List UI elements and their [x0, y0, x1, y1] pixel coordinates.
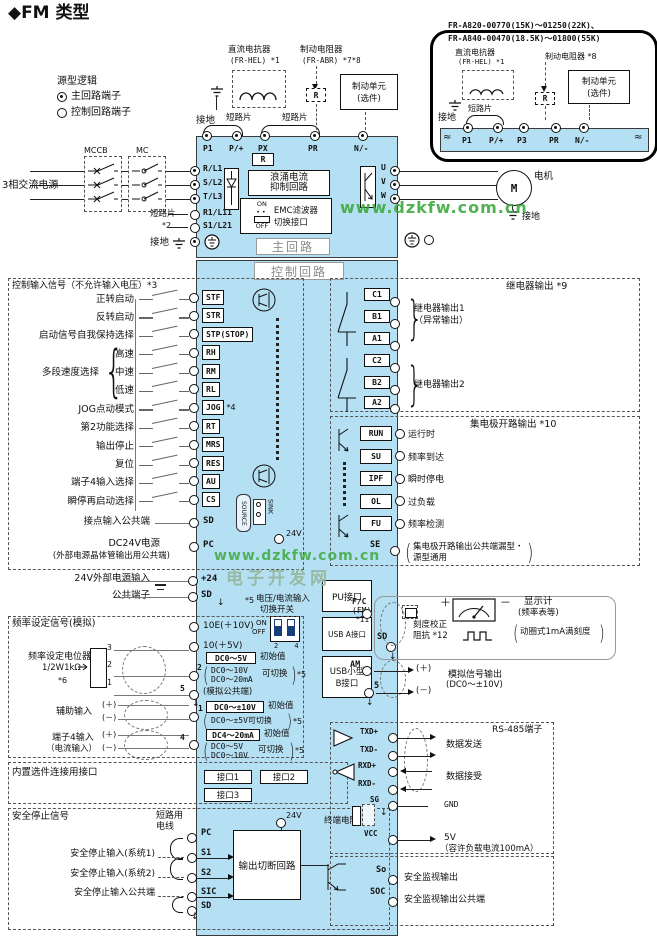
relay-output-1-label: 继电器输出1 — [414, 304, 465, 314]
terminal-4-input-label-2: （电流输入） — [46, 745, 97, 755]
sink-label: SINK — [266, 499, 273, 514]
terminal-px-circle — [260, 131, 270, 141]
inset-brake-unit-box: 制动单元 (选件) — [568, 70, 630, 104]
jumper-wire — [172, 897, 183, 913]
emc-filter-box: ON •• OFF EMC滤波器 切换接口 — [240, 198, 332, 234]
input-terminal-circle — [189, 403, 199, 413]
inset-terminal-p3-circle — [519, 123, 529, 133]
data-receive-label: 数据接受 — [446, 772, 482, 782]
inset-brake-unit-opt: (选件) — [587, 87, 611, 99]
safety-24v-source — [276, 818, 286, 828]
wire — [406, 771, 432, 772]
pot-label-1: 频率设定电位器 — [28, 652, 91, 662]
input-terminal: STP(STOP) — [202, 327, 253, 342]
terminal-u-circle — [390, 166, 400, 176]
terminal-rxdm: RXD- — [358, 780, 376, 789]
input-row: 低速 RL — [10, 383, 255, 396]
display-meter-sub: (频率表等) — [518, 609, 559, 619]
sink-pin — [256, 512, 261, 517]
terminal-s1l21: S1/L21 — [203, 221, 232, 230]
model-line-1: FR-A820-00770(15K)～01250(22K)、 — [446, 21, 601, 30]
terminal-v-circle — [390, 180, 400, 190]
inset-terminal-pplus: P/+ — [489, 136, 503, 145]
paren: ( — [405, 541, 411, 566]
internal-r-box: R — [252, 153, 274, 166]
tx-buffer-icon — [332, 728, 356, 748]
terminal-c1: C1 — [364, 288, 390, 301]
safety-input-2-label: 安全停止输入(系统2) — [30, 869, 155, 879]
safety-wire-label-2: 电线 — [156, 822, 174, 832]
input-label: 输出停止 — [10, 438, 137, 452]
input-row: 启动信号自我保持选择 STP(STOP) — [10, 328, 255, 341]
arrow — [228, 874, 234, 880]
input-row: 第2功能选择 RT — [10, 420, 255, 433]
mc-label: MC — [136, 146, 149, 155]
terminal-2-range-box: DC0～5V — [206, 652, 256, 664]
wire — [589, 105, 590, 120]
wire-w — [400, 199, 498, 200]
down-arrow: ↓ — [366, 698, 374, 708]
input-terminal: RES — [202, 456, 224, 471]
frequency-heading: 频率设定信号(模拟) — [12, 619, 95, 630]
top-brake-unit-box: 制动单元 (选件) — [340, 74, 398, 110]
input-terminal-circle — [189, 495, 199, 505]
terminal-am-circle — [362, 666, 372, 676]
oc-terminal: IPF — [360, 471, 392, 486]
arrow — [430, 734, 436, 740]
calibration-resistor — [405, 608, 417, 618]
terminal-tl3: T/L3 — [203, 192, 222, 201]
top-reactor-name: 直流电抗器 — [228, 46, 271, 56]
wire — [120, 581, 188, 582]
terminal-vcc-circle — [388, 835, 398, 845]
option-port-2: 接口2 — [260, 770, 308, 784]
jumper2-label: 短路片 — [150, 210, 176, 220]
oc-row: SU 频率到达 — [360, 450, 444, 463]
terminal-pc: PC — [203, 540, 214, 550]
meter-minus: － — [500, 597, 511, 610]
input-terminal: MRS — [202, 437, 224, 452]
paren: ( — [203, 664, 208, 687]
terminal-s1l21-circle — [190, 223, 200, 233]
wire — [406, 789, 432, 790]
emc-label: EMC滤波器 切换接口 — [274, 204, 318, 228]
safety-24v-label: 24V — [286, 811, 302, 820]
terminal-10e: 10E(＋10V) — [203, 621, 254, 631]
wire — [398, 806, 428, 807]
input-terminal: RT — [202, 419, 220, 434]
terminal-pr-circle — [310, 131, 320, 141]
terminal-vcc: VCC — [364, 830, 378, 839]
inset-terminal-pr-circle — [551, 123, 561, 133]
input-label: 正转启动 — [10, 291, 137, 305]
input-terminal: JOG — [202, 400, 224, 415]
top-brake-resistor-model: (FR-ABR) *7*8 — [302, 57, 361, 66]
gnd-label: GND — [444, 800, 458, 809]
relay-contact-icon — [334, 356, 360, 414]
top-brake-resistor-label: 制动电阻器 — [300, 46, 343, 56]
calibration-label-2: 阻抗 *12 — [413, 632, 448, 642]
wire-v — [400, 185, 497, 186]
arrow — [430, 752, 436, 758]
inset-coil-icon — [468, 82, 508, 96]
leader — [158, 857, 184, 858]
emc-label-2: 切换接口 — [274, 216, 318, 228]
option-heading: 内置选件连接用接口 — [12, 768, 98, 779]
top-coil-icon — [238, 86, 280, 102]
terminal-sd-circle — [189, 518, 199, 528]
wire — [316, 66, 317, 84]
relay-output-2-label: 继电器输出2 — [414, 380, 465, 390]
data-send-label: 数据发送 — [446, 740, 482, 750]
switch-icon — [137, 328, 189, 341]
input-note: *4 — [226, 403, 235, 412]
terminal-p1: P1 — [203, 144, 213, 153]
terminal-plus24-circle — [188, 576, 198, 586]
oc-row: OL 过负载 — [360, 495, 444, 508]
safety-monitor-common-label: 安全监视输出公共端 — [404, 895, 485, 905]
multi-speed-brace: { — [104, 340, 124, 404]
wire — [216, 96, 217, 110]
terminal-rl1-circle — [190, 166, 200, 176]
inset-terminal-nminus-circle — [579, 123, 589, 133]
terminal-p1-circle — [202, 131, 212, 141]
safety-wire-label-1: 短路用 — [156, 811, 183, 821]
input-label: 第2功能选择 — [10, 419, 137, 433]
terminal-2-alt2: DC0～20mA — [211, 675, 253, 684]
terminal-safety-pc: PC — [201, 829, 211, 839]
oc-label: 频率检测 — [408, 517, 444, 530]
shielded-cable — [122, 646, 166, 694]
multi-speed-label: 多段速度选择 — [42, 368, 99, 379]
optocoupler-icon — [246, 286, 282, 314]
input-label: 瞬停再启动选择 — [10, 493, 137, 507]
input-terminal: RL — [202, 382, 220, 397]
pot-pin-1: 1 — [107, 678, 112, 687]
terminal-a2-circle — [390, 404, 400, 414]
terminal-1-range-box: DC0～±10V — [206, 701, 264, 713]
se-label-2: 源型通用 — [413, 554, 447, 564]
terminal-4-circle — [189, 740, 199, 750]
switch-icon — [137, 493, 189, 506]
terminal-fc: F/C — [352, 597, 366, 606]
terminal-rxdp: RXD+ — [358, 762, 376, 771]
terminal-2-alt1: DC0～10V — [211, 666, 248, 675]
am-minus: (－) — [416, 687, 431, 697]
input-terminal-circle — [189, 293, 199, 303]
wire — [118, 719, 189, 720]
input-terminal-circle — [189, 348, 199, 358]
square-wave-icon — [462, 630, 494, 642]
oc-row: RUN 运行时 — [360, 427, 444, 440]
switch-icon — [137, 365, 189, 378]
terminal-rxdp-circle — [388, 767, 398, 777]
source-jumper: SOURCE — [236, 494, 251, 532]
input-terminal-circle — [189, 421, 199, 431]
terminal-2-note: *5 — [297, 670, 306, 679]
resistor-switch — [362, 804, 375, 826]
pot-note: *6 — [58, 676, 67, 685]
wire — [197, 897, 231, 898]
oc-transistor-icon — [334, 426, 360, 456]
oc-terminal: RUN — [360, 426, 392, 441]
optocoupler-icon — [246, 462, 282, 490]
inset-terminal-p1-circle — [463, 123, 473, 133]
input-row: 反转启动 STR — [10, 309, 255, 322]
arrow — [430, 836, 436, 842]
oc-dotted-line — [343, 462, 346, 506]
safety-monitor-box — [330, 856, 554, 926]
terminal-2-circle — [189, 671, 199, 681]
wire — [118, 735, 189, 736]
terminal-txdp: TXD+ — [360, 728, 378, 737]
safety-monitor-output-label: 安全监视输出 — [404, 873, 458, 883]
terminal-plus24: +24 — [201, 574, 217, 584]
terminal-r1l11: R1/L11 — [203, 208, 232, 217]
leader — [158, 896, 184, 897]
terminal-se-circle — [390, 546, 400, 556]
legend-main: 主回路端子 — [71, 91, 121, 103]
option-port-1: 接口1 — [204, 770, 252, 784]
terminal-pplus-circle — [232, 131, 242, 141]
surge-line2: 抑制回路 — [270, 183, 308, 193]
oc-terminal: FU — [360, 516, 392, 531]
surge-suppression-box: 浪涌电流 抑制回路 — [248, 170, 330, 196]
oc-row: FU 频率检测 — [360, 517, 444, 530]
inset-terminal-p3: P3 — [517, 136, 527, 145]
emc-switch: ON •• OFF — [254, 201, 270, 231]
top-jumper-right-label: 短路片 — [282, 114, 308, 124]
terminal-2-switchable: 可切换 — [262, 670, 288, 680]
terminal-sic-circle — [187, 892, 197, 902]
terminal-w-circle — [390, 194, 400, 204]
oc-transistor-icon — [334, 512, 360, 542]
input-terminal: STF — [202, 290, 224, 305]
emc-pins: •• — [256, 209, 268, 217]
top-jumper-left-label: 短路片 — [226, 114, 252, 124]
pot-wiper-arrow — [78, 662, 90, 672]
oc-label: 频率到达 — [408, 450, 444, 463]
ground-out-circle — [424, 235, 434, 245]
se-label-1: 集电极开路输出公共端漏型・ — [413, 543, 524, 553]
analog-output-label: 模拟信号输出 — [448, 670, 502, 680]
input-terminal-circle — [189, 440, 199, 450]
usb-b-line2: B接口 — [336, 677, 359, 689]
terminal-nminus-circle — [358, 131, 368, 141]
output-shutoff-box: 输出切断回路 — [233, 830, 301, 900]
transistor-icon — [362, 169, 374, 205]
wire-u — [400, 171, 498, 172]
inset-reactor-name: 直流电抗器 — [455, 48, 495, 57]
potentiometer — [90, 648, 107, 688]
diode-icon — [226, 171, 237, 207]
t4-plus: (＋) — [102, 730, 116, 739]
aux-minus: (－) — [102, 713, 116, 722]
open-collector-rows: RUN 运行时 SU 频率到达 IPF 瞬时停电 OL 过负载 FU 频率检测 — [360, 427, 444, 530]
terminal-4-alt2: DC0～10V — [211, 751, 248, 760]
wire — [398, 756, 430, 757]
terminal-am-5-circle — [364, 688, 374, 698]
relay-heading: 继电器输出 *9 — [506, 282, 567, 293]
terminal-rxdm-circle — [388, 785, 398, 795]
terminal-am: AM — [350, 661, 360, 671]
wire — [118, 748, 189, 749]
terminal-s1-circle — [187, 853, 197, 863]
wire — [155, 523, 189, 524]
paren: ) — [527, 541, 533, 566]
terminal-sd: SD — [203, 516, 214, 526]
terminal-10e-circle — [189, 622, 199, 632]
terminal-sg-circle — [388, 801, 398, 811]
wire — [114, 650, 189, 651]
relay-output-1-sub: （异常输出） — [414, 316, 468, 326]
oc-label: 过负载 — [408, 495, 435, 508]
battery-bar — [157, 589, 164, 590]
terminal-so: So — [376, 866, 386, 876]
input-label: 反转启动 — [10, 309, 137, 323]
display-meter-spec: 动圈式1mA满刻度 — [520, 628, 591, 638]
vi-switch-label-2: 切换开关 — [260, 606, 294, 616]
terminal-safety-sd: SD — [201, 902, 211, 912]
terminal-pr: PR — [308, 144, 318, 153]
input-row: 输出停止 MRS — [10, 438, 255, 451]
inset-brake-resistor-r: R — [535, 92, 555, 105]
wire — [114, 695, 189, 696]
arrow — [228, 854, 234, 860]
terminal-px: PX — [258, 144, 268, 153]
input-row: 正转启动 STF — [10, 291, 255, 304]
input-terminal-circle — [189, 384, 199, 394]
arrow — [228, 893, 234, 899]
terminal-2: 2 — [197, 663, 202, 672]
terminal-sl2-circle — [190, 180, 200, 190]
inset-terminal-p1: P1 — [462, 136, 472, 145]
contact-common-label: 接点输入公共端 — [20, 517, 150, 528]
terminal-b1: B1 — [364, 310, 390, 323]
terminal-10: 10(＋5V) — [203, 641, 242, 651]
wire — [545, 62, 546, 86]
terminal-nminus: N/- — [354, 144, 368, 153]
oc-terminal: OL — [360, 494, 392, 509]
relay-contact-icon — [334, 290, 360, 348]
source-label: SOURCE — [240, 501, 247, 526]
pot-pin-2: 2 — [107, 660, 112, 669]
terminal-so-circle — [388, 875, 398, 885]
control-terminal-legend-icon — [57, 108, 67, 118]
switch-icon — [137, 420, 189, 433]
power-label: 3相交流电源 — [2, 180, 58, 192]
main-terminal-legend-icon — [57, 92, 67, 102]
leader — [158, 877, 184, 878]
input-terminal: STR — [202, 308, 224, 323]
switch-icon — [137, 457, 189, 470]
terminal-pc-circle — [189, 542, 199, 552]
paren: ) — [291, 664, 296, 687]
paren: ( — [513, 622, 518, 645]
open-collector-heading: 集电极开路输出 *10 — [470, 420, 556, 431]
input-terminal-circle — [189, 458, 199, 468]
terminal-4-input-label-1: 端子4输入 — [52, 733, 94, 743]
arrow — [408, 689, 414, 695]
inset-brake-resistor-label: 制动电阻器 *8 — [545, 52, 597, 61]
wiring-diagram: ◆FM 类型 源型逻辑 主回路端子 控制回路端子 FR-A820-00770(1… — [0, 0, 657, 942]
terminal-10-circle — [189, 642, 199, 652]
terminal-2-init: 初始值 — [260, 653, 286, 663]
earth-terminal-out-icon — [404, 232, 420, 248]
terminating-resistor — [352, 806, 361, 826]
wire — [118, 705, 189, 706]
input-row: 端子4输入选择 AU — [10, 475, 255, 488]
switch-icon — [137, 309, 189, 322]
wire — [114, 676, 189, 677]
terminal-safety-pc-circle — [187, 833, 197, 843]
terminal-u: U — [381, 163, 386, 172]
wire — [197, 858, 231, 859]
terminal-b2-circle — [390, 385, 400, 395]
terminal-b1-circle — [390, 319, 400, 329]
top-reactor-model: (FR-HEL) *1 — [230, 57, 280, 66]
inset-reactor-model: (FR-HEL) *1 — [458, 58, 504, 66]
input-terminal-circle — [189, 311, 199, 321]
option-port-3: 接口3 — [204, 788, 252, 802]
paren: ( — [203, 740, 208, 763]
wire — [398, 840, 430, 841]
inset-terminal-nminus: N/- — [575, 136, 589, 145]
terminal-4-switchable: 可切换 — [258, 746, 284, 756]
input-terminal: RH — [202, 345, 220, 360]
legend-heading: 源型逻辑 — [57, 76, 97, 88]
mccb-switches-icon — [86, 159, 120, 209]
terminal-tl3-circle — [190, 194, 200, 204]
wire — [376, 693, 408, 694]
main-circuit-label-box: 主回路 — [256, 238, 330, 255]
rx-buffer-icon — [332, 762, 356, 782]
internal-dotted-line — [276, 318, 279, 460]
terminal-ext-sd: SD — [201, 590, 212, 600]
terminal-ground-circle — [190, 237, 200, 247]
oc-label: 运行时 — [408, 427, 435, 440]
safety-heading: 安全停止信号 — [12, 812, 69, 823]
terminal-s2-circle — [187, 873, 197, 883]
terminal-am-5: 5 — [374, 682, 379, 692]
terminal-txdp-circle — [388, 733, 398, 743]
input-terminal-circle — [189, 476, 199, 486]
input-row: 高速 RH — [10, 346, 255, 359]
terminal-a2: A2 — [364, 396, 390, 409]
switch-icon — [137, 383, 189, 396]
motor-label: 电机 — [534, 172, 553, 183]
aux-plus: (＋) — [102, 700, 116, 709]
model-line-2: FR-A840-00470(18.5K)～01800(55K) — [446, 34, 603, 43]
wire — [365, 112, 366, 130]
terminal-5: 5 — [180, 684, 185, 693]
inset-ground-icon — [448, 100, 462, 111]
down-arrow: ↓ — [217, 598, 225, 608]
oc-label: 瞬时停电 — [408, 472, 444, 485]
ground-in-icon — [172, 238, 186, 249]
page-title: ◆FM 类型 — [8, 4, 90, 24]
wire — [545, 106, 546, 120]
terminal-sl2: S/L2 — [203, 178, 222, 187]
terminal-4-alt1: DC0～5V — [211, 742, 243, 751]
terminal-5-label: (模拟公共端) — [203, 688, 252, 698]
jumper2-note: *2 — [162, 221, 171, 230]
terminal-4-init: 初始值 — [264, 730, 290, 740]
ground-in-label: 接地 — [150, 238, 169, 249]
terminal-1-note: *5 — [293, 717, 302, 726]
analog-output-range: (DC0～±10V) — [446, 681, 503, 691]
input-terminal-circle — [189, 366, 199, 376]
